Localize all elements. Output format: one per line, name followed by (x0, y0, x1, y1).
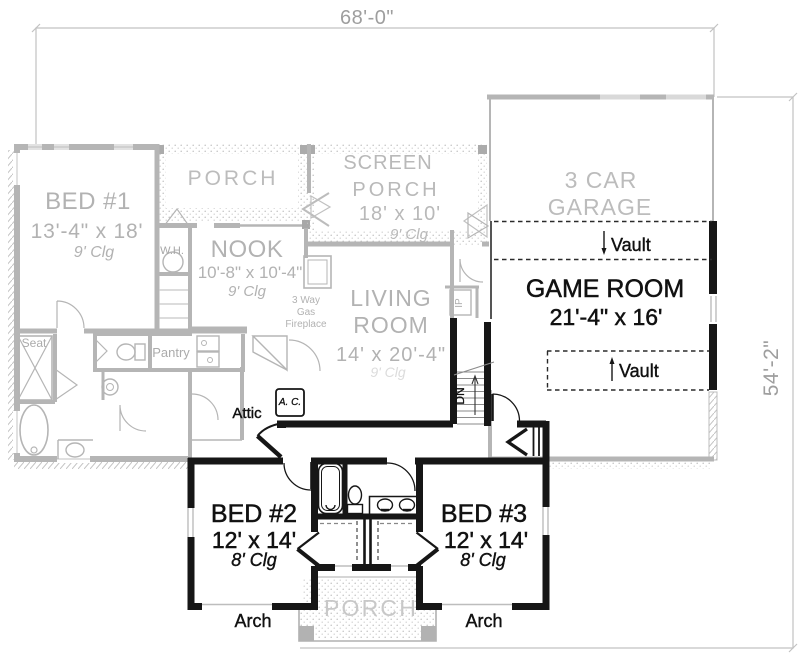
svg-text:A. C.: A. C. (278, 397, 301, 408)
svg-text:8' Clg: 8' Clg (460, 550, 505, 570)
svg-text:Gas: Gas (297, 307, 315, 318)
svg-text:ROOM: ROOM (353, 312, 429, 338)
svg-text:DN: DN (453, 387, 467, 404)
svg-text:BED #2: BED #2 (211, 500, 297, 528)
svg-text:9' Clg: 9' Clg (228, 283, 267, 300)
svg-text:Pantry: Pantry (152, 345, 190, 360)
svg-text:9' Clg: 9' Clg (74, 244, 115, 261)
svg-text:68'-0": 68'-0" (340, 7, 394, 29)
svg-text:Seat: Seat (22, 336, 47, 350)
svg-text:NOOK: NOOK (211, 236, 284, 263)
svg-text:Attic: Attic (232, 405, 262, 422)
svg-text:SCREEN: SCREEN (343, 152, 432, 174)
svg-text:9' Clg: 9' Clg (390, 226, 429, 243)
svg-text:18' x 10': 18' x 10' (359, 203, 441, 225)
svg-text:PORCH: PORCH (352, 179, 439, 201)
svg-text:21'-4" x 16': 21'-4" x 16' (550, 304, 663, 330)
svg-text:10'-8" x 10'-4": 10'-8" x 10'-4" (198, 263, 303, 282)
svg-text:Arch: Arch (465, 611, 502, 631)
svg-text:3 CAR: 3 CAR (565, 167, 638, 193)
svg-text:9' Clg: 9' Clg (370, 364, 406, 380)
svg-text:PORCH: PORCH (324, 595, 418, 621)
svg-text:Arch: Arch (234, 611, 271, 631)
svg-text:GARAGE: GARAGE (548, 194, 652, 220)
svg-text:BED #1: BED #1 (45, 188, 131, 215)
svg-text:54'-2": 54'-2" (760, 340, 783, 397)
svg-text:Vault: Vault (611, 235, 651, 255)
svg-text:3 Way: 3 Way (292, 295, 320, 306)
svg-text:PORCH: PORCH (188, 167, 279, 190)
svg-text:14' x 20'-4": 14' x 20'-4" (336, 344, 446, 366)
svg-text:IP: IP (454, 298, 465, 308)
svg-text:13'-4" x 18': 13'-4" x 18' (31, 220, 144, 243)
svg-text:BED #3: BED #3 (441, 500, 527, 528)
svg-text:Vault: Vault (619, 361, 659, 381)
svg-text:GAME ROOM: GAME ROOM (526, 275, 684, 303)
svg-text:W.H.: W.H. (160, 245, 184, 257)
svg-text:8' Clg: 8' Clg (231, 550, 276, 570)
svg-text:Fireplace: Fireplace (285, 319, 327, 330)
svg-text:LIVING: LIVING (350, 285, 431, 311)
